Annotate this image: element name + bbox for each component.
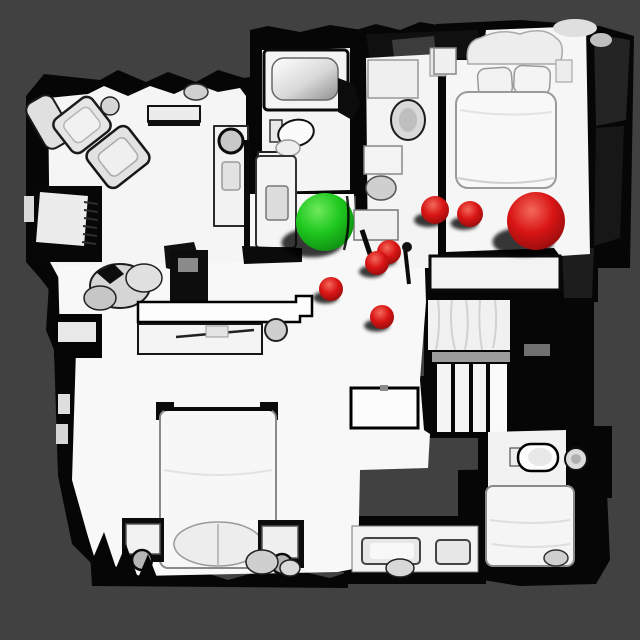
banister-ledge: [430, 256, 560, 290]
dresser-drawer: [436, 540, 470, 564]
cushion: [101, 97, 119, 115]
door-jamb: [24, 196, 34, 222]
large-red-sphere: [507, 192, 565, 250]
door-frame-pole: [244, 140, 250, 260]
wall-top-lump: [590, 33, 612, 47]
waypoint-sphere: [421, 196, 449, 224]
basin-oval: [276, 140, 300, 156]
pillow: [513, 65, 550, 95]
waypoint-sphere: [370, 305, 394, 329]
stairwell-ledge: [524, 344, 550, 356]
door-jamb: [58, 394, 70, 414]
table-item: [206, 326, 228, 337]
table: [138, 324, 262, 354]
basket: [184, 84, 208, 100]
console-shadow: [148, 120, 200, 126]
chair: [126, 264, 162, 292]
chair: [84, 286, 116, 310]
waypoint-sphere: [457, 201, 483, 227]
stand-top: [178, 258, 198, 272]
stair-tread: [490, 364, 507, 432]
stair-tread: [455, 364, 469, 432]
dresser: [354, 210, 398, 240]
cabinet-top: [36, 192, 88, 246]
counter: [368, 60, 418, 98]
side-unit-top: [58, 322, 96, 342]
lamp-knob: [402, 242, 412, 252]
wall-facet: [594, 126, 624, 246]
cabinet: [364, 146, 402, 174]
stair-landing: [432, 352, 510, 362]
clutter: [280, 560, 300, 576]
globe: [265, 319, 287, 341]
wall-top-lump: [553, 19, 597, 37]
stair-tread: [473, 364, 486, 432]
waypoint-sphere: [365, 251, 389, 275]
closet: [351, 388, 418, 428]
nightstand: [556, 60, 572, 82]
drawer-inset: [370, 543, 414, 559]
clutter: [386, 559, 414, 577]
scene-canvas[interactable]: [0, 0, 640, 640]
round-mirror: [219, 129, 243, 153]
toilet-bowl: [399, 108, 417, 132]
render-viewport[interactable]: [0, 0, 640, 640]
wall-facet: [594, 34, 630, 126]
sink-drain: [571, 454, 581, 464]
console: [148, 106, 200, 122]
stair-tread: [437, 364, 451, 432]
clutter: [544, 550, 568, 566]
desk-item: [222, 162, 240, 190]
bed: [456, 92, 556, 188]
door-jamb: [56, 424, 68, 444]
curtain: [428, 300, 510, 350]
waypoint-sphere: [319, 277, 343, 301]
toilet-bowl: [528, 448, 552, 466]
clutter: [246, 550, 278, 574]
sink: [366, 176, 396, 200]
bathtub-basin: [272, 58, 338, 100]
bedroom-lower-right: [486, 486, 574, 566]
nightstand: [434, 48, 456, 74]
closet-knob: [380, 385, 388, 391]
board-panel: [266, 186, 288, 220]
